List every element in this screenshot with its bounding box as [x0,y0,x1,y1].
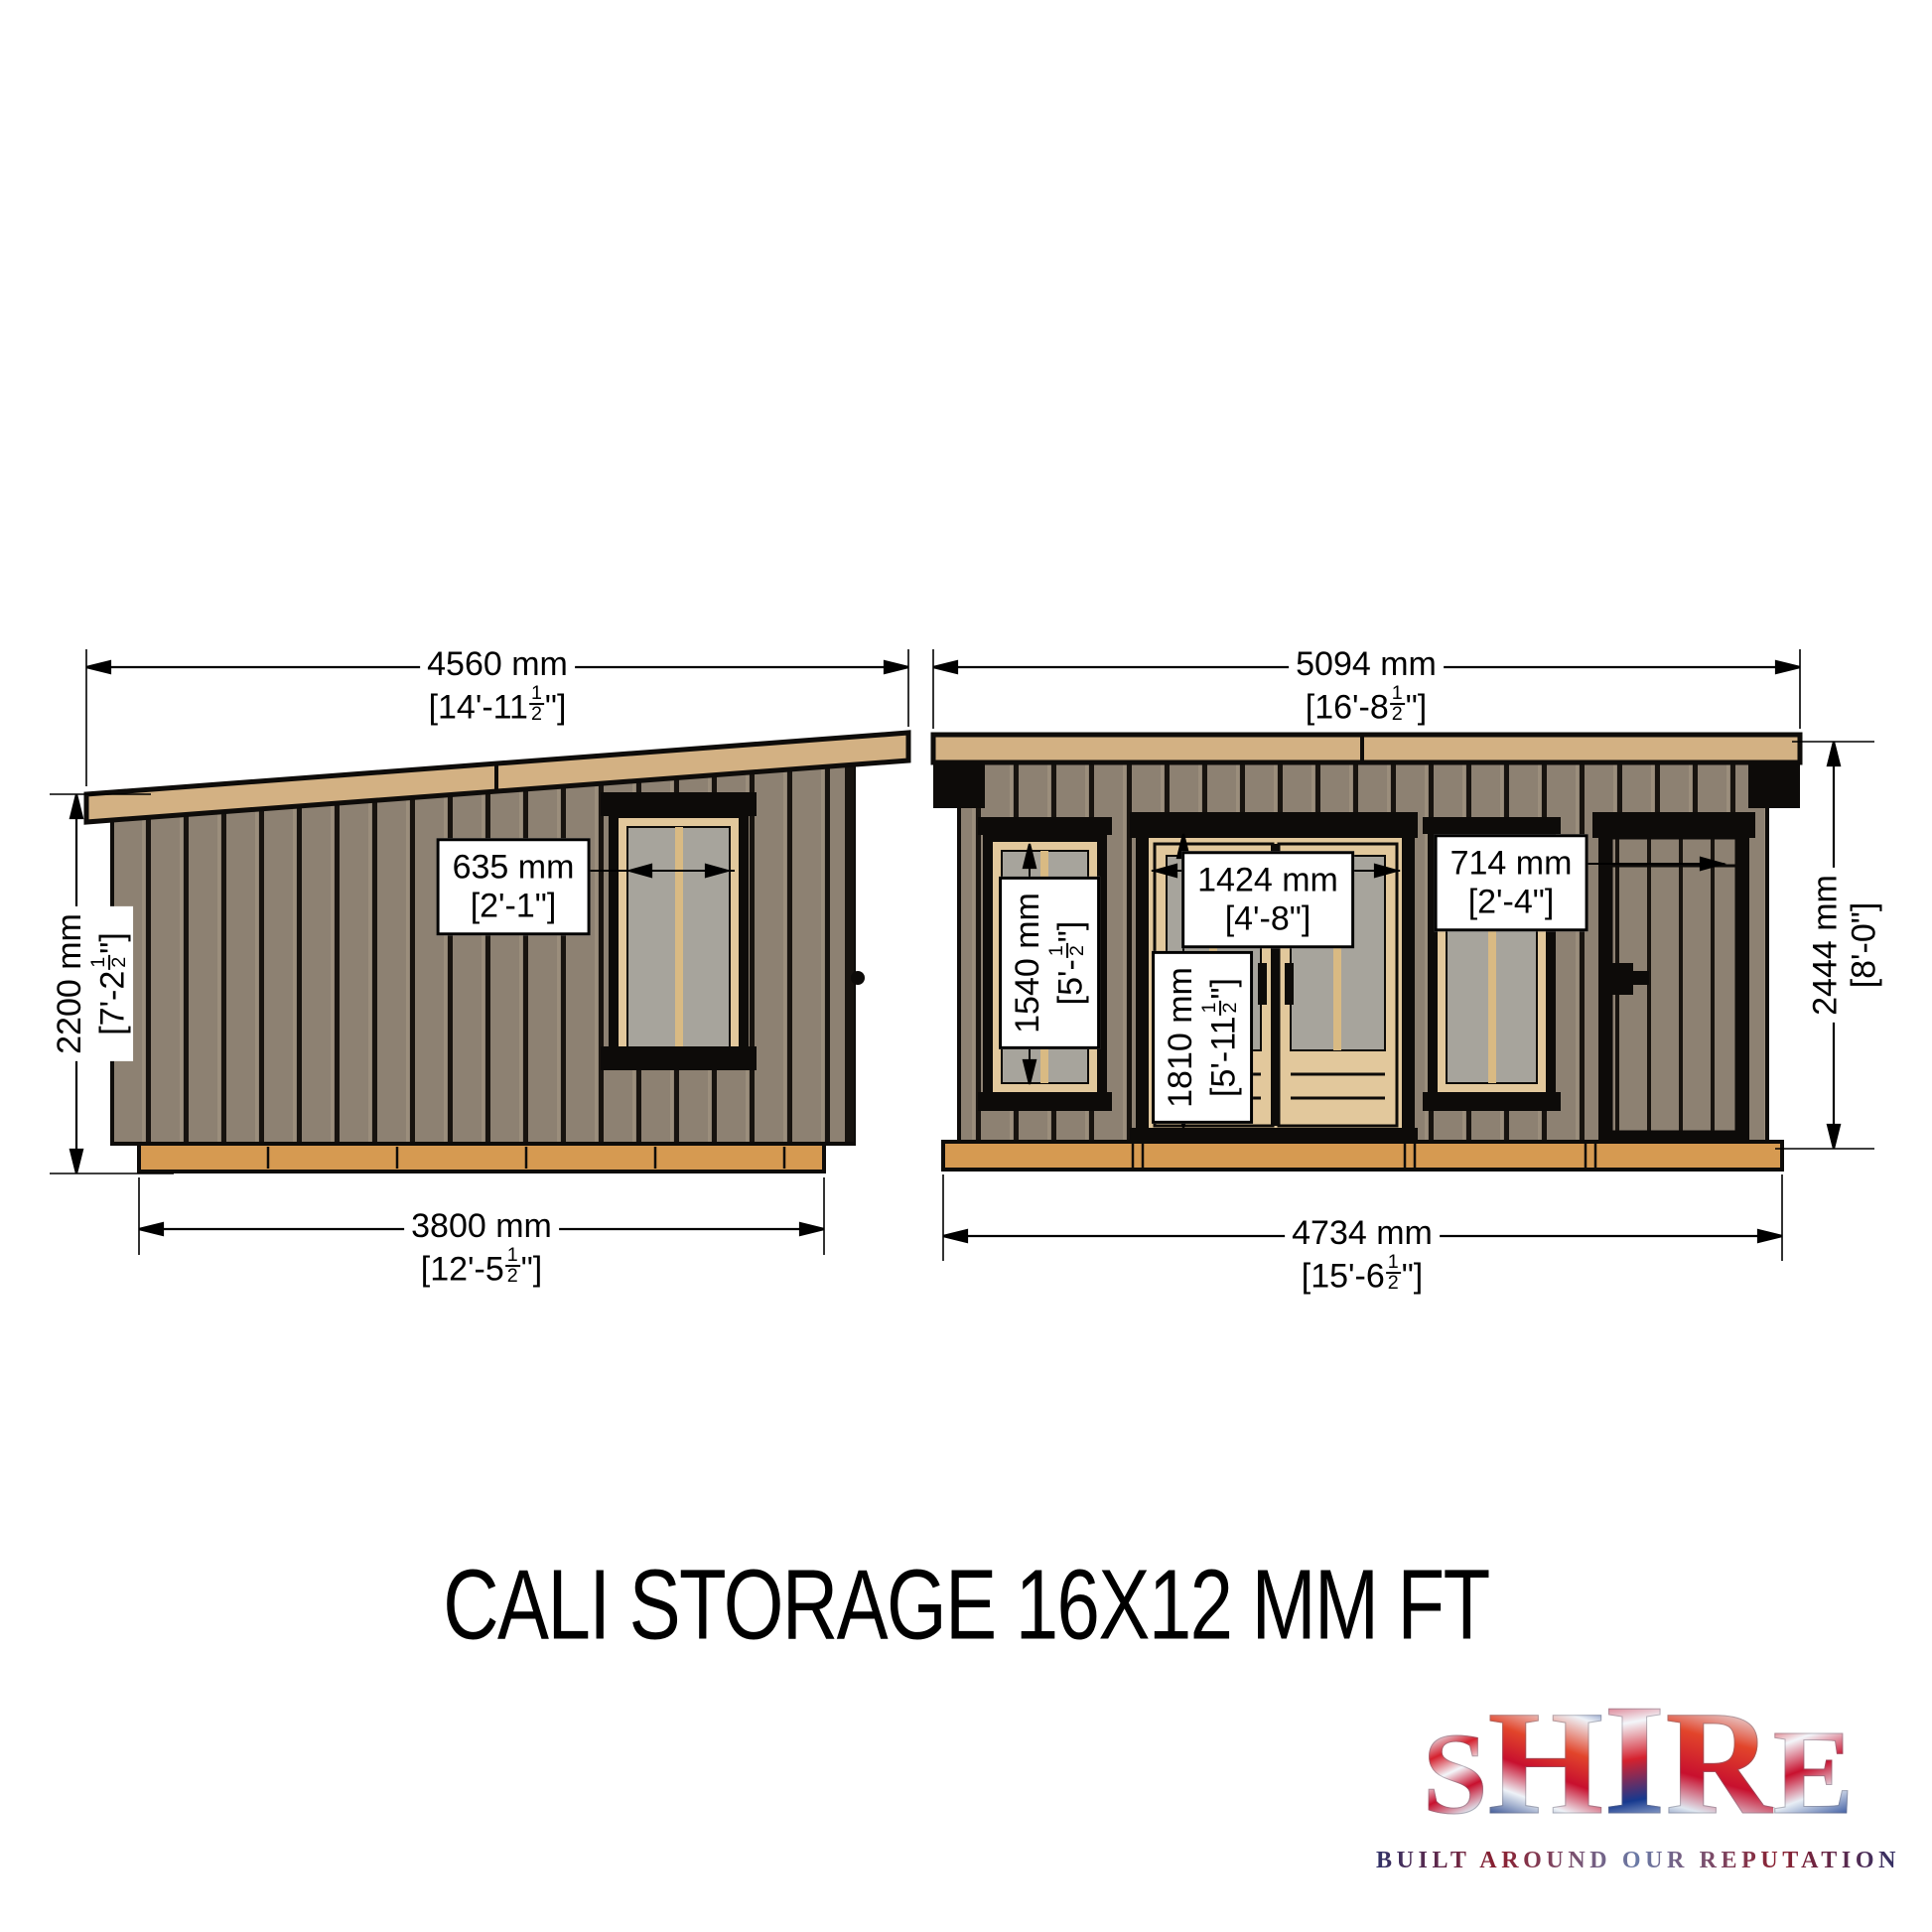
side-door-knob [851,971,865,985]
front-roof [933,735,1800,762]
dim-front-window-height: 1540 mm [5'-12"] [999,877,1100,1049]
logo-letter-e: E [1773,1706,1854,1840]
shire-logo: SHIRE BUILT AROUND OUR REPUTATION [1358,1680,1918,1872]
logo-letter-h: H [1487,1681,1603,1846]
dim-front-width-bottom: 4734 mm [15'-612"] [1285,1213,1440,1297]
side-window-sill [601,1046,757,1070]
shire-logo-letters: SHIRE [1358,1680,1918,1839]
side-base [139,1144,824,1172]
drawing-sheet: 4560 mm [14'-1112"] 5094 mm [16'-812"] 2… [0,0,1932,1932]
dim-side-width-top: 4560 mm [14'-1112"] [420,644,575,728]
drawing-title: CALI STORAGE 16X12 MM FT [443,1549,1488,1663]
logo-letter-i: I [1603,1671,1665,1848]
side-window [601,792,757,1070]
front-soffit-right [1748,762,1800,808]
door-handle-left [1258,963,1267,1005]
logo-letter-r: R [1665,1681,1772,1846]
side-window-glass-line [675,827,683,1049]
dim-front-door-width: 1424 mm [4'-8"] [1181,851,1354,948]
side-corner-trim [845,766,854,1142]
dim-front-window-width: 714 mm [2'-4"] [1435,834,1588,931]
dim-side-window-width: 635 mm [2'-1"] [437,838,591,935]
dim-side-height-left: 2200 mm [7'-212"] [50,906,133,1061]
front-soffit-left [933,762,985,808]
window-sill [1423,1092,1561,1111]
door-handle [1633,971,1649,985]
window-cap [1423,817,1561,834]
side-elevation [86,733,908,1172]
front-base [943,1142,1782,1170]
logo-letter-s: S [1423,1709,1488,1839]
door-lock [1605,963,1633,995]
dim-side-width-bottom: 3800 mm [12'-512"] [404,1206,559,1290]
door-handle-right [1285,963,1294,1005]
window-sill [978,1092,1112,1111]
dim-front-door-height: 1810 mm [5'-1112"] [1152,951,1253,1124]
dim-front-height-right: 2444 mm [8'-0"] [1805,868,1884,1023]
logo-tagline: BUILT AROUND OUR REPUTATION [1358,1849,1918,1872]
dim-front-width-top: 5094 mm [16'-812"] [1289,644,1444,728]
